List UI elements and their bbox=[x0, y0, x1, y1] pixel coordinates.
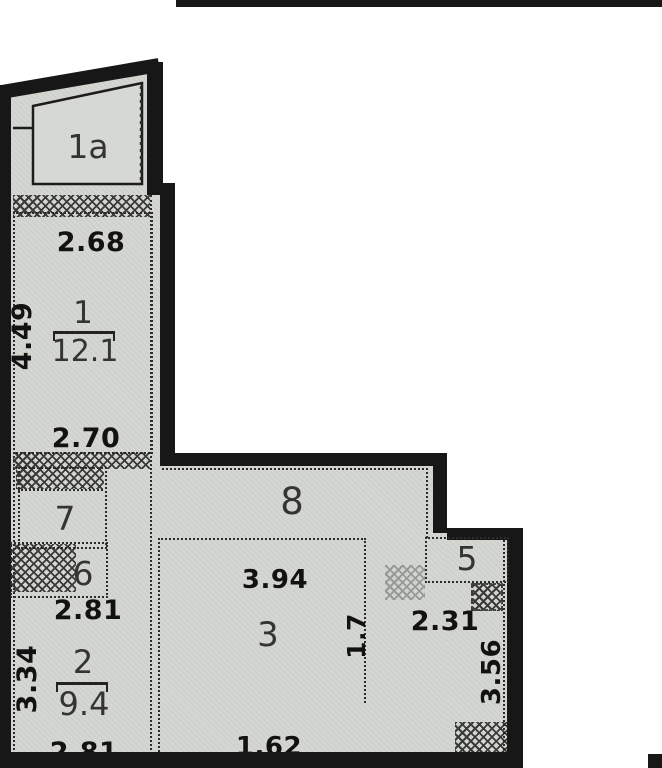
room7-inner-dotted-line bbox=[18, 489, 103, 491]
column-right-dotted-line bbox=[150, 195, 152, 750]
room-7-number: 7 bbox=[50, 500, 80, 536]
room-2-number: 2 bbox=[68, 644, 98, 680]
door-gap-hatch bbox=[385, 565, 425, 600]
room-1a-number: 1a bbox=[58, 126, 118, 166]
corridor-right-dotted-line bbox=[426, 468, 428, 538]
bottom-outer-wall bbox=[0, 752, 523, 768]
right-outer-wall bbox=[507, 528, 523, 760]
corridor-top-wall bbox=[160, 453, 447, 466]
room-1-number: 1 bbox=[68, 297, 98, 329]
dim-room2-depth-left: 3.34 bbox=[12, 644, 42, 714]
floor-plan: 1a 2.68 4.49 1 12.1 2.70 7 6 2.81 3.34 2… bbox=[0, 0, 662, 768]
bottom-right-corner-mark bbox=[648, 754, 662, 768]
dim-room5-width: 2.31 bbox=[410, 606, 480, 636]
bottom-right-window-hatch bbox=[455, 722, 508, 752]
room-8-number: 8 bbox=[276, 480, 308, 522]
room-3-number: 3 bbox=[254, 616, 282, 654]
top-border-rule bbox=[176, 0, 662, 7]
left-outer-wall bbox=[0, 85, 11, 768]
room3-left-dotted-line bbox=[158, 538, 160, 752]
dim-room1-width-top: 2.68 bbox=[55, 227, 127, 257]
dim-room1-depth-left: 4.49 bbox=[7, 300, 37, 372]
column-right-wall bbox=[160, 186, 175, 466]
room-6-number: 6 bbox=[68, 553, 98, 593]
mid-right-wall bbox=[433, 453, 447, 533]
room6-hatch bbox=[10, 544, 76, 592]
room-2-area: 9.4 bbox=[58, 686, 110, 722]
corridor-dotted-line bbox=[162, 468, 428, 470]
dim-room3-width-top: 3.94 bbox=[241, 565, 309, 595]
dim-room2-width-top: 2.81 bbox=[52, 595, 124, 625]
room-1-area: 12.1 bbox=[54, 334, 116, 368]
room3-top-dotted-line bbox=[158, 538, 366, 540]
dim-room3-depth-right: 1.7 bbox=[343, 610, 369, 662]
dim-room5-depth-right: 3.56 bbox=[477, 637, 507, 707]
room-5-number: 5 bbox=[453, 540, 481, 576]
dim-room1-width-bottom: 2.70 bbox=[50, 423, 122, 453]
balcony-right-wall bbox=[147, 62, 163, 186]
